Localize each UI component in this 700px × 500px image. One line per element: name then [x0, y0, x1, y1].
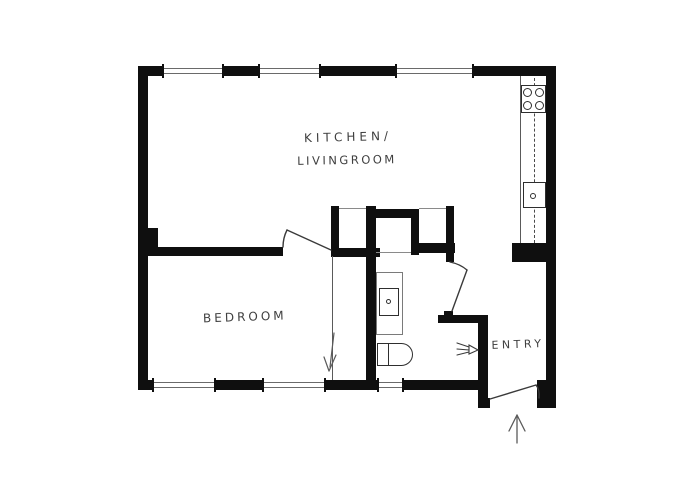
sliding-door-arrow-icon: [324, 333, 336, 371]
entry-label: ENTRY: [490, 337, 546, 352]
ventilation-arrow-icon: [457, 343, 478, 355]
doors-and-symbols-layer: [0, 0, 700, 500]
bedroom-door: [283, 230, 331, 250]
floor-plan: KITCHEN/ LIVINGROOM BEDROOM ENTRY: [0, 0, 700, 500]
kitchen-living-label-line1: KITCHEN/: [300, 129, 396, 146]
bathroom-door: [450, 262, 467, 311]
kitchen-living-label-line2: LIVINGROOM: [293, 152, 401, 168]
bedroom-label: BEDROOM: [203, 309, 281, 326]
entrance-door: [490, 385, 539, 399]
entrance-direction-arrow-icon: [509, 415, 525, 443]
